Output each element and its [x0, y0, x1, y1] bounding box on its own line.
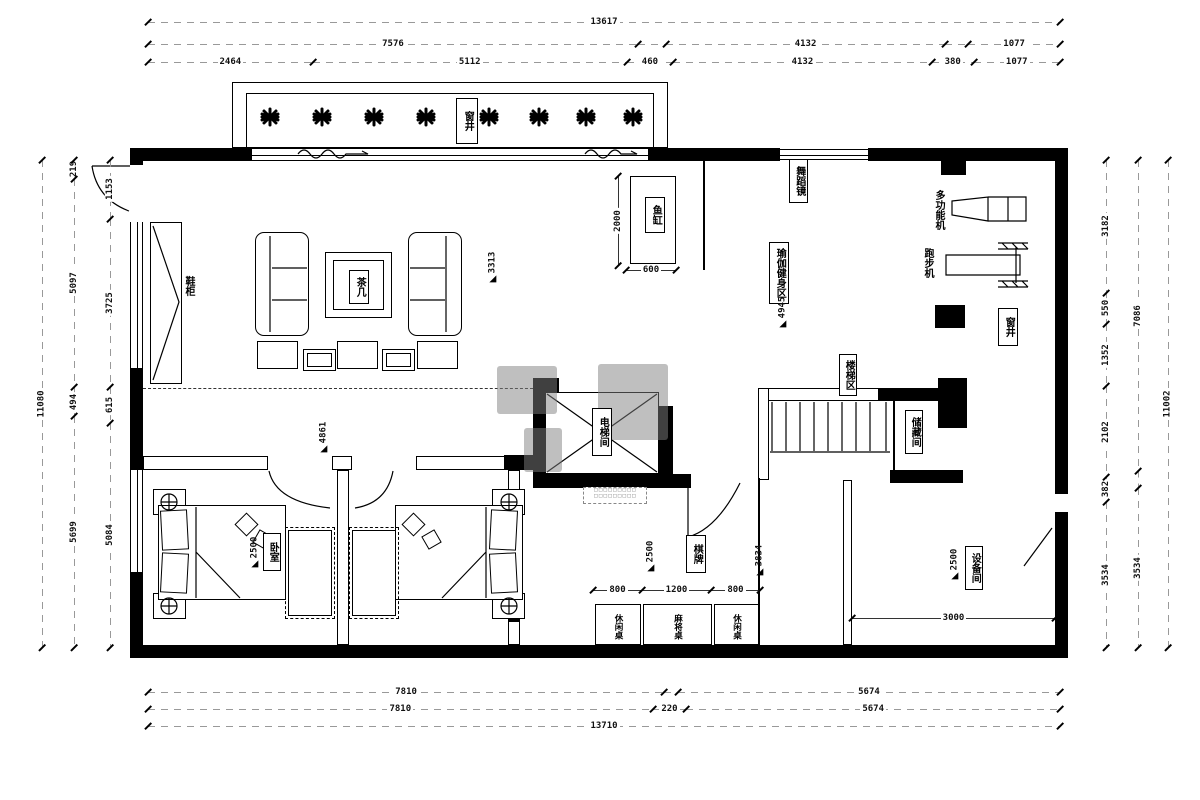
dim-value: 5084: [105, 523, 115, 549]
tea-table-label: 茶几: [349, 270, 369, 304]
bedside-rug: [352, 530, 396, 616]
dim-segment: 4132: [666, 38, 945, 50]
dim-segment: 5699: [68, 416, 80, 648]
dim-tick: [144, 40, 151, 47]
dim-value: 2464: [218, 57, 244, 67]
dim-chain-fish-height: 2000: [612, 176, 624, 266]
dim-segment: 3182: [1100, 160, 1112, 293]
wall-segment: [533, 474, 691, 488]
dim-segment: [945, 38, 968, 50]
dim-arrow-icon: [320, 445, 327, 452]
dim-segment: 615: [104, 387, 116, 423]
corridor-door-arc: [688, 478, 740, 537]
dim-tick: [144, 18, 151, 25]
dim-segment: 380: [932, 56, 974, 68]
dim-chain-bottom-overall: 13710: [148, 720, 1060, 732]
dim-value: 2000: [613, 208, 623, 234]
dim-value: 11002: [1163, 388, 1173, 419]
dim-annotation: 3313: [487, 252, 497, 283]
bedside-rug: [288, 530, 332, 616]
dim-chain-right-mid: 70863534: [1132, 160, 1144, 648]
shoe-cabinet: [150, 222, 182, 384]
side-table: [303, 349, 336, 371]
wall-segment: [868, 148, 1068, 161]
dim-arrow-icon: [647, 564, 654, 571]
dim-segment: 2464: [148, 56, 313, 68]
dim-chain-fish-width: 600: [626, 264, 676, 276]
dim-value: 3725: [105, 290, 115, 316]
dim-value: 494: [69, 391, 79, 411]
dim-segment: 7810: [148, 703, 653, 715]
door-leaf: [1024, 528, 1052, 566]
dim-segment: 7810: [148, 686, 664, 698]
dim-segment: 5112: [313, 56, 627, 68]
dim-segment: 7576: [148, 38, 638, 50]
sofa-left: [255, 232, 309, 336]
dim-segment: 11080: [36, 160, 48, 648]
dim-chain-top-detail: 2464511246041323801077: [148, 56, 1060, 68]
column-pillar: [935, 305, 965, 328]
dim-segment: 1077: [968, 38, 1060, 50]
bedroom-label: 卧室: [263, 533, 281, 571]
window: [130, 470, 143, 572]
tiny-note-row: □□□□□□□□□: [584, 494, 646, 500]
dim-arrow-icon: [951, 572, 958, 579]
wall-segment: [648, 148, 780, 161]
dim-annotation: 2500: [949, 549, 959, 580]
dim-annotation: 2500: [249, 537, 259, 568]
dim-value: 800: [607, 585, 627, 595]
dim-tick: [144, 705, 151, 712]
elevator-label: 电梯间: [592, 408, 612, 456]
dim-tick: [622, 266, 629, 273]
table: 休闲桌: [714, 604, 759, 645]
stool: [417, 341, 458, 369]
dim-value: 800: [725, 585, 745, 595]
dim-value: 7810: [387, 704, 413, 714]
dim-tick: [1164, 156, 1171, 163]
wall-segment: [1055, 148, 1068, 658]
dim-value: 460: [640, 57, 660, 67]
watermark-blob: [497, 366, 557, 414]
dim-segment: 7086: [1132, 160, 1144, 471]
dim-value: 2102: [1101, 419, 1111, 445]
storage-label: 储藏间: [905, 410, 923, 454]
table-label: 麻将桌: [644, 609, 711, 644]
wall-segment: [130, 645, 1068, 658]
table-label: 休闲桌: [596, 609, 640, 644]
wall-segment: [130, 368, 143, 470]
dim-segment: 220: [653, 703, 687, 715]
window-well-label: 窗井: [998, 308, 1018, 346]
stool: [257, 341, 298, 369]
dim-value: 220: [659, 704, 679, 714]
dim-tick: [144, 688, 151, 695]
dim-value: 4132: [793, 39, 819, 49]
treadmill-machine: [946, 243, 1028, 287]
treadmill-label: 跑步机: [922, 248, 932, 278]
dim-tick: [1102, 156, 1109, 163]
dim-value: 3000: [941, 613, 967, 623]
planter-label: 窗井: [456, 98, 478, 144]
wall-segment: [890, 470, 963, 483]
dim-chain-right-overall: 11002: [1162, 160, 1174, 648]
stool: [337, 341, 378, 369]
mirror-label: 舞蹈镜: [789, 159, 808, 203]
dim-segment: 1200: [642, 584, 711, 596]
bedroom-door-arc: [269, 471, 330, 508]
zone-divider-dashed: [143, 388, 533, 389]
dim-arrow-icon: [779, 320, 786, 327]
multi-gym-machine: [952, 197, 1026, 221]
dim-annotation: 3834: [754, 545, 764, 576]
dim-value: 13617: [588, 17, 619, 27]
window: [252, 148, 648, 161]
dim-value: 7810: [393, 687, 419, 697]
window: [130, 222, 143, 368]
dim-value: 7576: [380, 39, 406, 49]
dim-segment: 3000: [852, 612, 1055, 624]
dim-arrow-icon: [489, 275, 496, 282]
dim-segment: 3725: [104, 219, 116, 387]
equipment-room-label: 设备间: [965, 546, 983, 590]
dim-value: 3534: [1101, 562, 1111, 588]
dim-value: 11080: [37, 388, 47, 419]
dim-value: 5097: [69, 270, 79, 296]
dim-chain-bottom-mid: 78102205674: [148, 703, 1060, 715]
dim-tick: [38, 156, 45, 163]
dim-segment: 460: [627, 56, 673, 68]
bedroom-door-arc: [355, 471, 393, 508]
dim-segment: [638, 38, 666, 50]
dim-segment: 800: [593, 584, 642, 596]
dim-chain-left-mid: 21950974945699: [68, 160, 80, 648]
dim-segment: 3534: [1100, 502, 1112, 648]
dim-value: 615: [105, 395, 115, 415]
pillow: [160, 509, 189, 550]
dim-segment: 1352: [1100, 324, 1112, 386]
dim-tick: [106, 156, 113, 163]
yoga-area-label: 瑜伽健身区: [769, 242, 789, 304]
dim-chain-top-overall: 13617: [148, 16, 1060, 28]
dim-chain-tables: 8001200800: [593, 584, 760, 596]
dim-segment: 5084: [104, 423, 116, 648]
dim-segment: 13710: [148, 720, 1060, 732]
dim-value: 1200: [664, 585, 690, 595]
planter-box-inner: [246, 93, 654, 148]
dim-value: 7086: [1133, 303, 1143, 329]
dim-value: 380: [943, 57, 963, 67]
dim-segment: 1077: [974, 56, 1060, 68]
dim-segment: 1153: [104, 160, 116, 219]
dim-segment: 2102: [1100, 386, 1112, 477]
table: 麻将桌: [643, 604, 712, 645]
wall-segment: [130, 148, 143, 165]
dim-value: 5112: [457, 57, 483, 67]
dim-segment: 5097: [68, 179, 80, 387]
dim-tick: [614, 172, 621, 179]
dim-segment: 550: [1100, 293, 1112, 324]
dim-segment: 3534: [1132, 488, 1144, 648]
dim-segment: 800: [711, 584, 760, 596]
dim-value: 550: [1101, 298, 1111, 318]
dim-segment: 13617: [148, 16, 1060, 28]
dim-value: 5674: [860, 704, 886, 714]
dim-chain-right-inner: 3182550135221023823534: [1100, 160, 1112, 648]
dim-chain-top-mid: 757641321077: [148, 38, 1060, 50]
dim-segment: 219: [68, 160, 80, 179]
interior-wall: [332, 456, 352, 470]
dim-segment: 382: [1100, 477, 1112, 502]
wall-segment: [938, 378, 967, 428]
dim-value: 5674: [856, 687, 882, 697]
dim-value: 3182: [1101, 213, 1111, 239]
dim-annotation: 4945: [777, 297, 787, 328]
dim-tick: [144, 722, 151, 729]
stairs-steps: [770, 402, 890, 452]
table: 休闲桌: [595, 604, 641, 645]
dim-value: 13710: [588, 721, 619, 731]
wall-line: [703, 160, 705, 270]
dim-annotation: 4861: [318, 422, 328, 453]
chess-area-label: 棋牌: [686, 535, 706, 573]
bedroom-partition-wall: [337, 470, 349, 645]
dim-chain-bottom-inner: 78105674: [148, 686, 1060, 698]
floor-plan-canvas: 休闲桌 麻将桌 休闲桌: [0, 0, 1200, 800]
wall-opening: [1055, 494, 1068, 512]
dim-segment: 11002: [1162, 160, 1174, 648]
table-label: 休闲桌: [715, 609, 758, 644]
dim-value: 4132: [790, 57, 816, 67]
multi-gym-label: 多功能机: [933, 190, 943, 230]
dim-value: 1352: [1101, 342, 1111, 368]
dim-segment: 600: [626, 264, 676, 276]
dim-segment: 5674: [678, 686, 1060, 698]
dim-segment: 5674: [686, 703, 1060, 715]
dim-segment: 4132: [673, 56, 932, 68]
sofa-right: [408, 232, 462, 336]
dim-value: 5699: [69, 519, 79, 545]
dim-annotation: 2500: [645, 541, 655, 572]
dim-value: 600: [641, 265, 661, 275]
interior-wall: [143, 456, 268, 470]
side-table: [382, 349, 415, 371]
wall-nub: [941, 161, 966, 175]
pillow: [160, 552, 189, 593]
dim-tick: [144, 58, 151, 65]
dim-value: 1077: [1001, 39, 1027, 49]
dim-segment: 494: [68, 387, 80, 416]
dim-chain-left-overall: 11080: [36, 160, 48, 648]
dim-arrow-icon: [251, 560, 258, 567]
wall-line: [893, 400, 895, 472]
wall-segment: [232, 146, 252, 161]
dim-tick: [1134, 156, 1141, 163]
stairs-label: 楼梯区: [839, 354, 857, 396]
dim-tick: [589, 586, 596, 593]
pillow: [489, 552, 518, 593]
fish-tank-label: 鱼缸: [645, 197, 665, 233]
tiny-note-box: □□□□□□□□□ □□□□□□□□□: [583, 487, 647, 504]
dim-value: 382: [1101, 479, 1111, 499]
dim-chain-room-width: 3000: [852, 612, 1055, 624]
dim-segment: 2000: [612, 176, 624, 266]
watermark-blob: [524, 428, 562, 472]
dim-arrow-icon: [756, 568, 763, 575]
dim-value: 1153: [105, 177, 115, 203]
wall-segment: [878, 388, 945, 401]
dim-value: 1077: [1004, 57, 1030, 67]
pillow: [489, 509, 518, 550]
dim-value: 3534: [1133, 555, 1143, 581]
shoe-cabinet-label: 鞋柜: [183, 276, 193, 296]
interior-wall: [758, 388, 769, 480]
dim-chain-left-inner: 115337256155084: [104, 160, 116, 648]
